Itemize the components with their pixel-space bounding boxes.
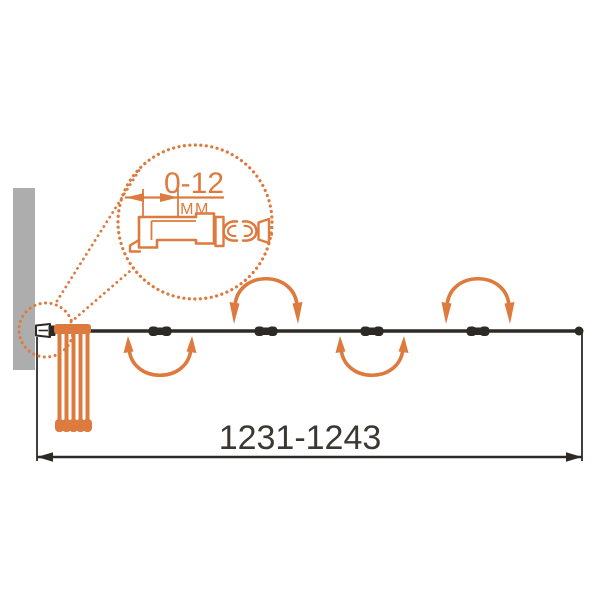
panel-hinge — [149, 327, 172, 337]
callout-leader-line — [57, 169, 140, 301]
arrowhead-up-icon — [124, 336, 134, 353]
dimension-arrow-right-icon — [566, 452, 582, 462]
hinge-pin — [157, 328, 164, 336]
diagram-canvas: 1231-1243 — [0, 0, 600, 600]
arrowhead-up-icon — [399, 336, 409, 353]
hinge-knuckle-inner — [245, 226, 253, 236]
wall-bracket — [36, 324, 56, 337]
fold-arrow-above — [442, 279, 515, 324]
fold-arc — [235, 279, 297, 308]
arrowhead-down-icon — [230, 302, 240, 324]
fold-arrow-above — [230, 279, 303, 324]
fold-arrow-below — [336, 336, 409, 375]
hinge-knuckle-section — [243, 221, 257, 240]
panel-bar — [72, 332, 76, 422]
hinge-pin — [263, 328, 270, 336]
hinge-knuckle-inner — [228, 226, 236, 236]
arrowhead-up-icon — [187, 336, 197, 353]
fold-arc — [341, 346, 403, 375]
arrowhead-down-icon — [442, 302, 452, 324]
folded-screen — [54, 324, 92, 432]
wall-profile-section — [139, 214, 214, 248]
detail-arrow-left-icon — [126, 193, 144, 202]
arrowhead-down-icon — [505, 302, 515, 324]
edge-end-cap — [575, 327, 584, 336]
panel-bar — [86, 332, 90, 422]
panel-hinge — [467, 327, 490, 337]
panel-hinge — [361, 327, 384, 337]
fold-arc — [129, 346, 191, 375]
width-range-label: 1231-1243 — [219, 419, 382, 457]
panel-hinge — [255, 327, 278, 337]
arrowhead-up-icon — [336, 336, 346, 353]
panel-bar — [79, 332, 83, 422]
fold-arc — [447, 279, 509, 308]
wall-bar — [13, 188, 35, 370]
screen-edge — [52, 327, 584, 336]
callout-leader-line — [71, 265, 137, 322]
diagram-page: 1231-1243 — [0, 0, 600, 600]
hinge-pin — [475, 328, 482, 336]
panel-foot — [83, 419, 92, 432]
adjustment-range-label: 0-12 — [164, 167, 224, 200]
hinge-pin — [369, 328, 376, 336]
hinge-knuckle-section — [223, 221, 237, 240]
width-dimension: 1231-1243 — [37, 333, 582, 462]
detail-drawing: 0-12 ММ — [125, 167, 273, 252]
fold-arrow-below — [124, 336, 197, 375]
panel-bar — [58, 332, 62, 422]
dimension-arrow-left-icon — [37, 452, 53, 462]
panel-clamp-section — [259, 219, 270, 243]
arrowhead-down-icon — [293, 302, 303, 324]
